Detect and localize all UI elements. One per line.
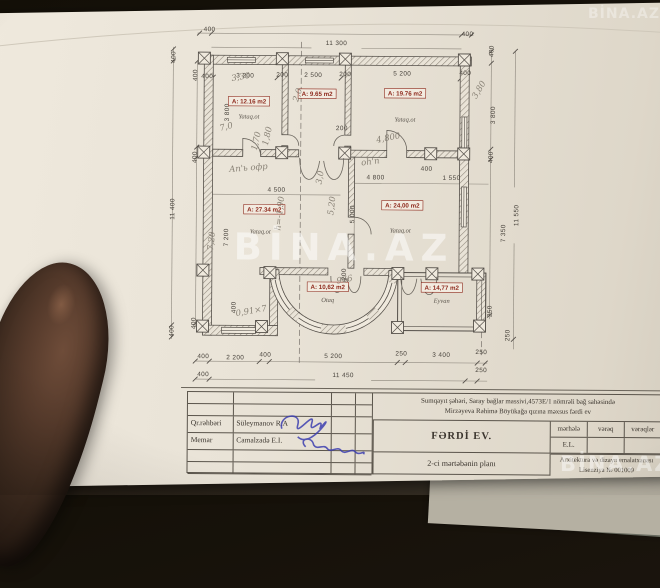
role-label: Qr.rəhbəri: [188, 416, 234, 432]
watermark-top-right: BİNA.AZ: [588, 6, 660, 22]
pencil-annotation: 7,0: [219, 121, 235, 134]
dimension-label: 400: [170, 51, 177, 63]
sheet-title: 2-ci mərtəbənin planı: [372, 452, 550, 475]
dimension-label: 3 800: [490, 106, 497, 124]
dimension-label: 400: [204, 26, 216, 33]
pencil-annotation: 996: [335, 272, 353, 285]
dimension-label: 400: [201, 73, 213, 80]
dimension-label: 400: [197, 353, 209, 360]
col-sheets: vərəqlər: [625, 422, 660, 437]
pencil-annotation: oh'n: [361, 156, 381, 168]
dimension-label: 400: [192, 151, 199, 163]
dimension-label: 250: [487, 305, 494, 317]
dimension-label: 250: [504, 329, 511, 341]
dimension-label: 4 500: [267, 187, 285, 194]
pencil-annotation: 5,20: [326, 195, 338, 216]
dimension-label: 400: [190, 317, 197, 329]
room-name-label: Eyvan: [433, 298, 450, 305]
dimension-label: 1 550: [443, 175, 461, 182]
dimension-label: 400: [197, 371, 209, 378]
room-name-label: Otaq: [321, 297, 335, 304]
dimension-label: 4 800: [367, 174, 385, 181]
dimension-label: 200: [336, 125, 348, 132]
dimension-label: 5 200: [393, 70, 411, 77]
pencil-annotation: Aп'ь офр: [228, 162, 269, 175]
stage-table: mərhələ vərəq vərəqlər E.L.: [551, 421, 660, 455]
room-area-label: A: 12.16 m2: [232, 98, 267, 105]
dimension-label: 11 400: [169, 198, 176, 220]
room-area-label: A: 24,00 m2: [385, 202, 420, 209]
dimension-label: 250: [475, 367, 487, 374]
dimension-label: 11 550: [513, 205, 520, 227]
room-name-label: Yataq.ot: [394, 116, 415, 123]
dimension-label: 5 200: [324, 353, 342, 360]
room-area-label: A: 9.65 m2: [302, 91, 334, 98]
pencil-annotation: 0,91×7: [235, 304, 268, 319]
pencil-annotation: 3,30: [231, 71, 252, 84]
dimension-label: 400: [421, 166, 433, 173]
pencil-annotation: 3,80: [470, 79, 489, 101]
role-label: Memar: [188, 433, 234, 449]
dimension-label: 250: [395, 350, 407, 357]
dimension-label: 400: [459, 70, 471, 77]
dimension-label: 400: [168, 325, 175, 337]
pencil-annotation: 4,800: [374, 131, 401, 146]
signature-table: Qr.rəhbəri Süleymanov R.A Memar Camalzad…: [186, 391, 373, 474]
room-area-label: A: 14,77 m2: [425, 285, 460, 292]
pencil-annotation: 3,0: [314, 169, 326, 185]
stage-value: E.L.: [551, 438, 588, 453]
project-title: FƏRDİ EV.: [373, 419, 551, 453]
dimension-label: 400: [462, 31, 474, 38]
pencil-annotation: 1,80: [261, 125, 275, 146]
dimension-label: 11 300: [326, 40, 348, 47]
col-sheet: vərəq: [588, 422, 625, 437]
site-line-2: Mirzəyeva Rəhimə Böyükağa qızına məxsus …: [373, 406, 660, 418]
dimension-label: 2 500: [304, 72, 322, 79]
col-stage: mərhələ: [551, 422, 588, 437]
dimension-label: 200: [339, 71, 351, 78]
dimension-label: 250: [475, 349, 487, 356]
dimension-label: 400: [259, 352, 271, 359]
dimension-label: 400: [488, 45, 495, 57]
watermark-center: BİNA.AZ: [158, 225, 530, 271]
signatures: [268, 407, 398, 460]
room-area-label: A: 19.76 m2: [388, 90, 423, 97]
floor-plan: 40011 3004004003 2002002 5002005 2004004…: [147, 17, 532, 400]
dimension-label: 3 400: [432, 352, 450, 359]
watermark-bottom-right: BİNA.AZ: [560, 452, 660, 476]
dimension-label: 200: [276, 72, 288, 79]
dimension-label: 400: [488, 151, 495, 163]
dimension-label: 400: [192, 69, 199, 81]
dimension-label: 11 450: [332, 372, 354, 379]
room-name-label: Yataq.ot: [238, 113, 259, 120]
dimension-label: 2 200: [226, 354, 244, 361]
dimension-label: 5 000: [349, 205, 356, 223]
project-description: Sumqayıt şəhəri, Saray bağlar massivi,45…: [373, 392, 660, 421]
